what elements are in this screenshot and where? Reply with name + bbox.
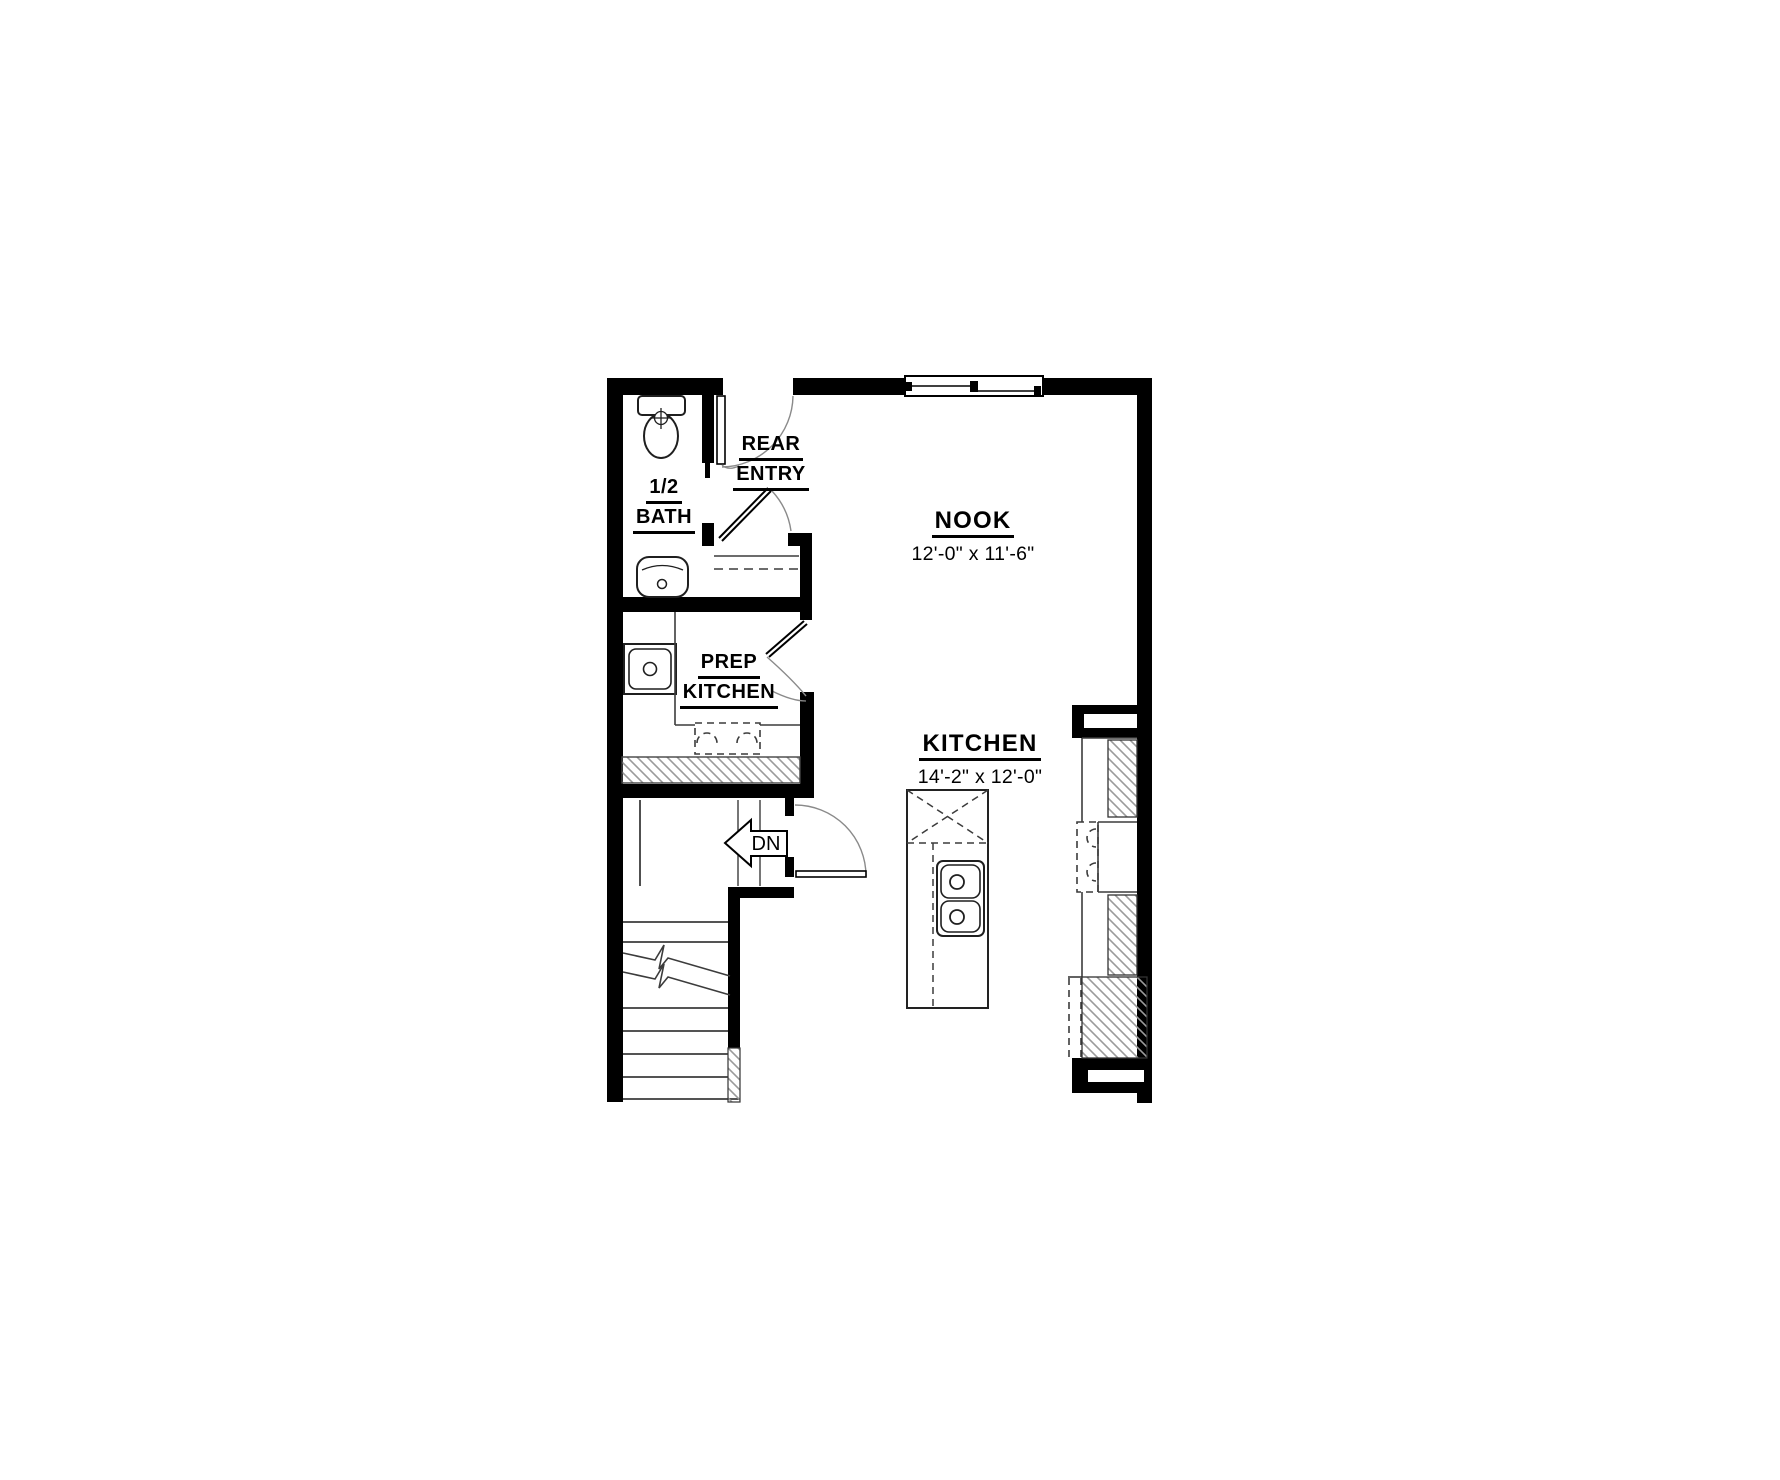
kitchen-island xyxy=(907,790,988,1008)
rear-entry-line2: ENTRY xyxy=(733,462,809,491)
toilet xyxy=(638,396,685,458)
stair-wall-hatch xyxy=(728,1048,740,1102)
pedestal-sink xyxy=(637,557,688,597)
rear-entry-line1: REAR xyxy=(739,432,804,461)
room-label-prep-kitchen: PREP KITCHEN xyxy=(659,650,799,710)
room-label-half-bath: 1/2 BATH xyxy=(604,475,724,535)
stairs-down-label: DN xyxy=(736,832,796,856)
nook-title: NOOK xyxy=(932,509,1015,538)
prep-kitchen-range xyxy=(695,723,760,754)
floor-plan-page: REAR ENTRY 1/2 BATH NOOK 12'-0" x 11'-6"… xyxy=(0,0,1780,1480)
half-bath-line2: BATH xyxy=(633,505,695,534)
prep-kitchen-line1: PREP xyxy=(698,650,760,679)
closet-door xyxy=(719,488,791,541)
room-label-rear-entry: REAR ENTRY xyxy=(711,432,831,492)
landing-door xyxy=(795,805,866,877)
island-double-sink xyxy=(937,861,984,936)
half-bath-line1: 1/2 xyxy=(646,475,681,504)
room-label-kitchen: KITCHEN 14'-2" x 12'-0" xyxy=(860,732,1100,787)
window xyxy=(905,376,1043,396)
closet-shelf xyxy=(714,556,799,569)
prep-kitchen-line2: KITCHEN xyxy=(680,680,778,709)
kitchen-title: KITCHEN xyxy=(919,732,1040,761)
kitchen-cabinet-hatches xyxy=(1082,740,1147,1058)
nook-dims: 12'-0" x 11'-6" xyxy=(853,545,1093,564)
room-label-nook: NOOK 12'-0" x 11'-6" xyxy=(853,509,1093,564)
kitchen-dims: 14'-2" x 12'-0" xyxy=(860,768,1100,787)
prep-knee-wall-hatch xyxy=(622,757,800,783)
